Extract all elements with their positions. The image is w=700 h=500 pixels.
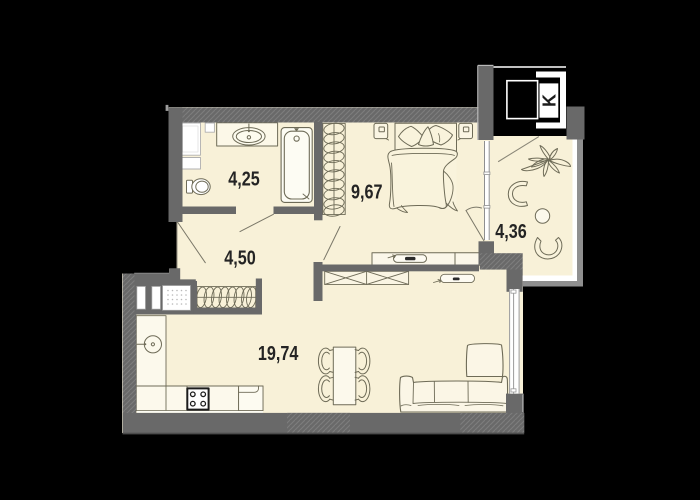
svg-text:9,67: 9,67 (351, 179, 383, 202)
svg-text:4,25: 4,25 (228, 167, 260, 190)
svg-text:4,36: 4,36 (495, 219, 527, 242)
svg-text:K: K (540, 94, 560, 107)
svg-text:19,74: 19,74 (258, 341, 299, 364)
svg-text:4,50: 4,50 (224, 246, 256, 269)
